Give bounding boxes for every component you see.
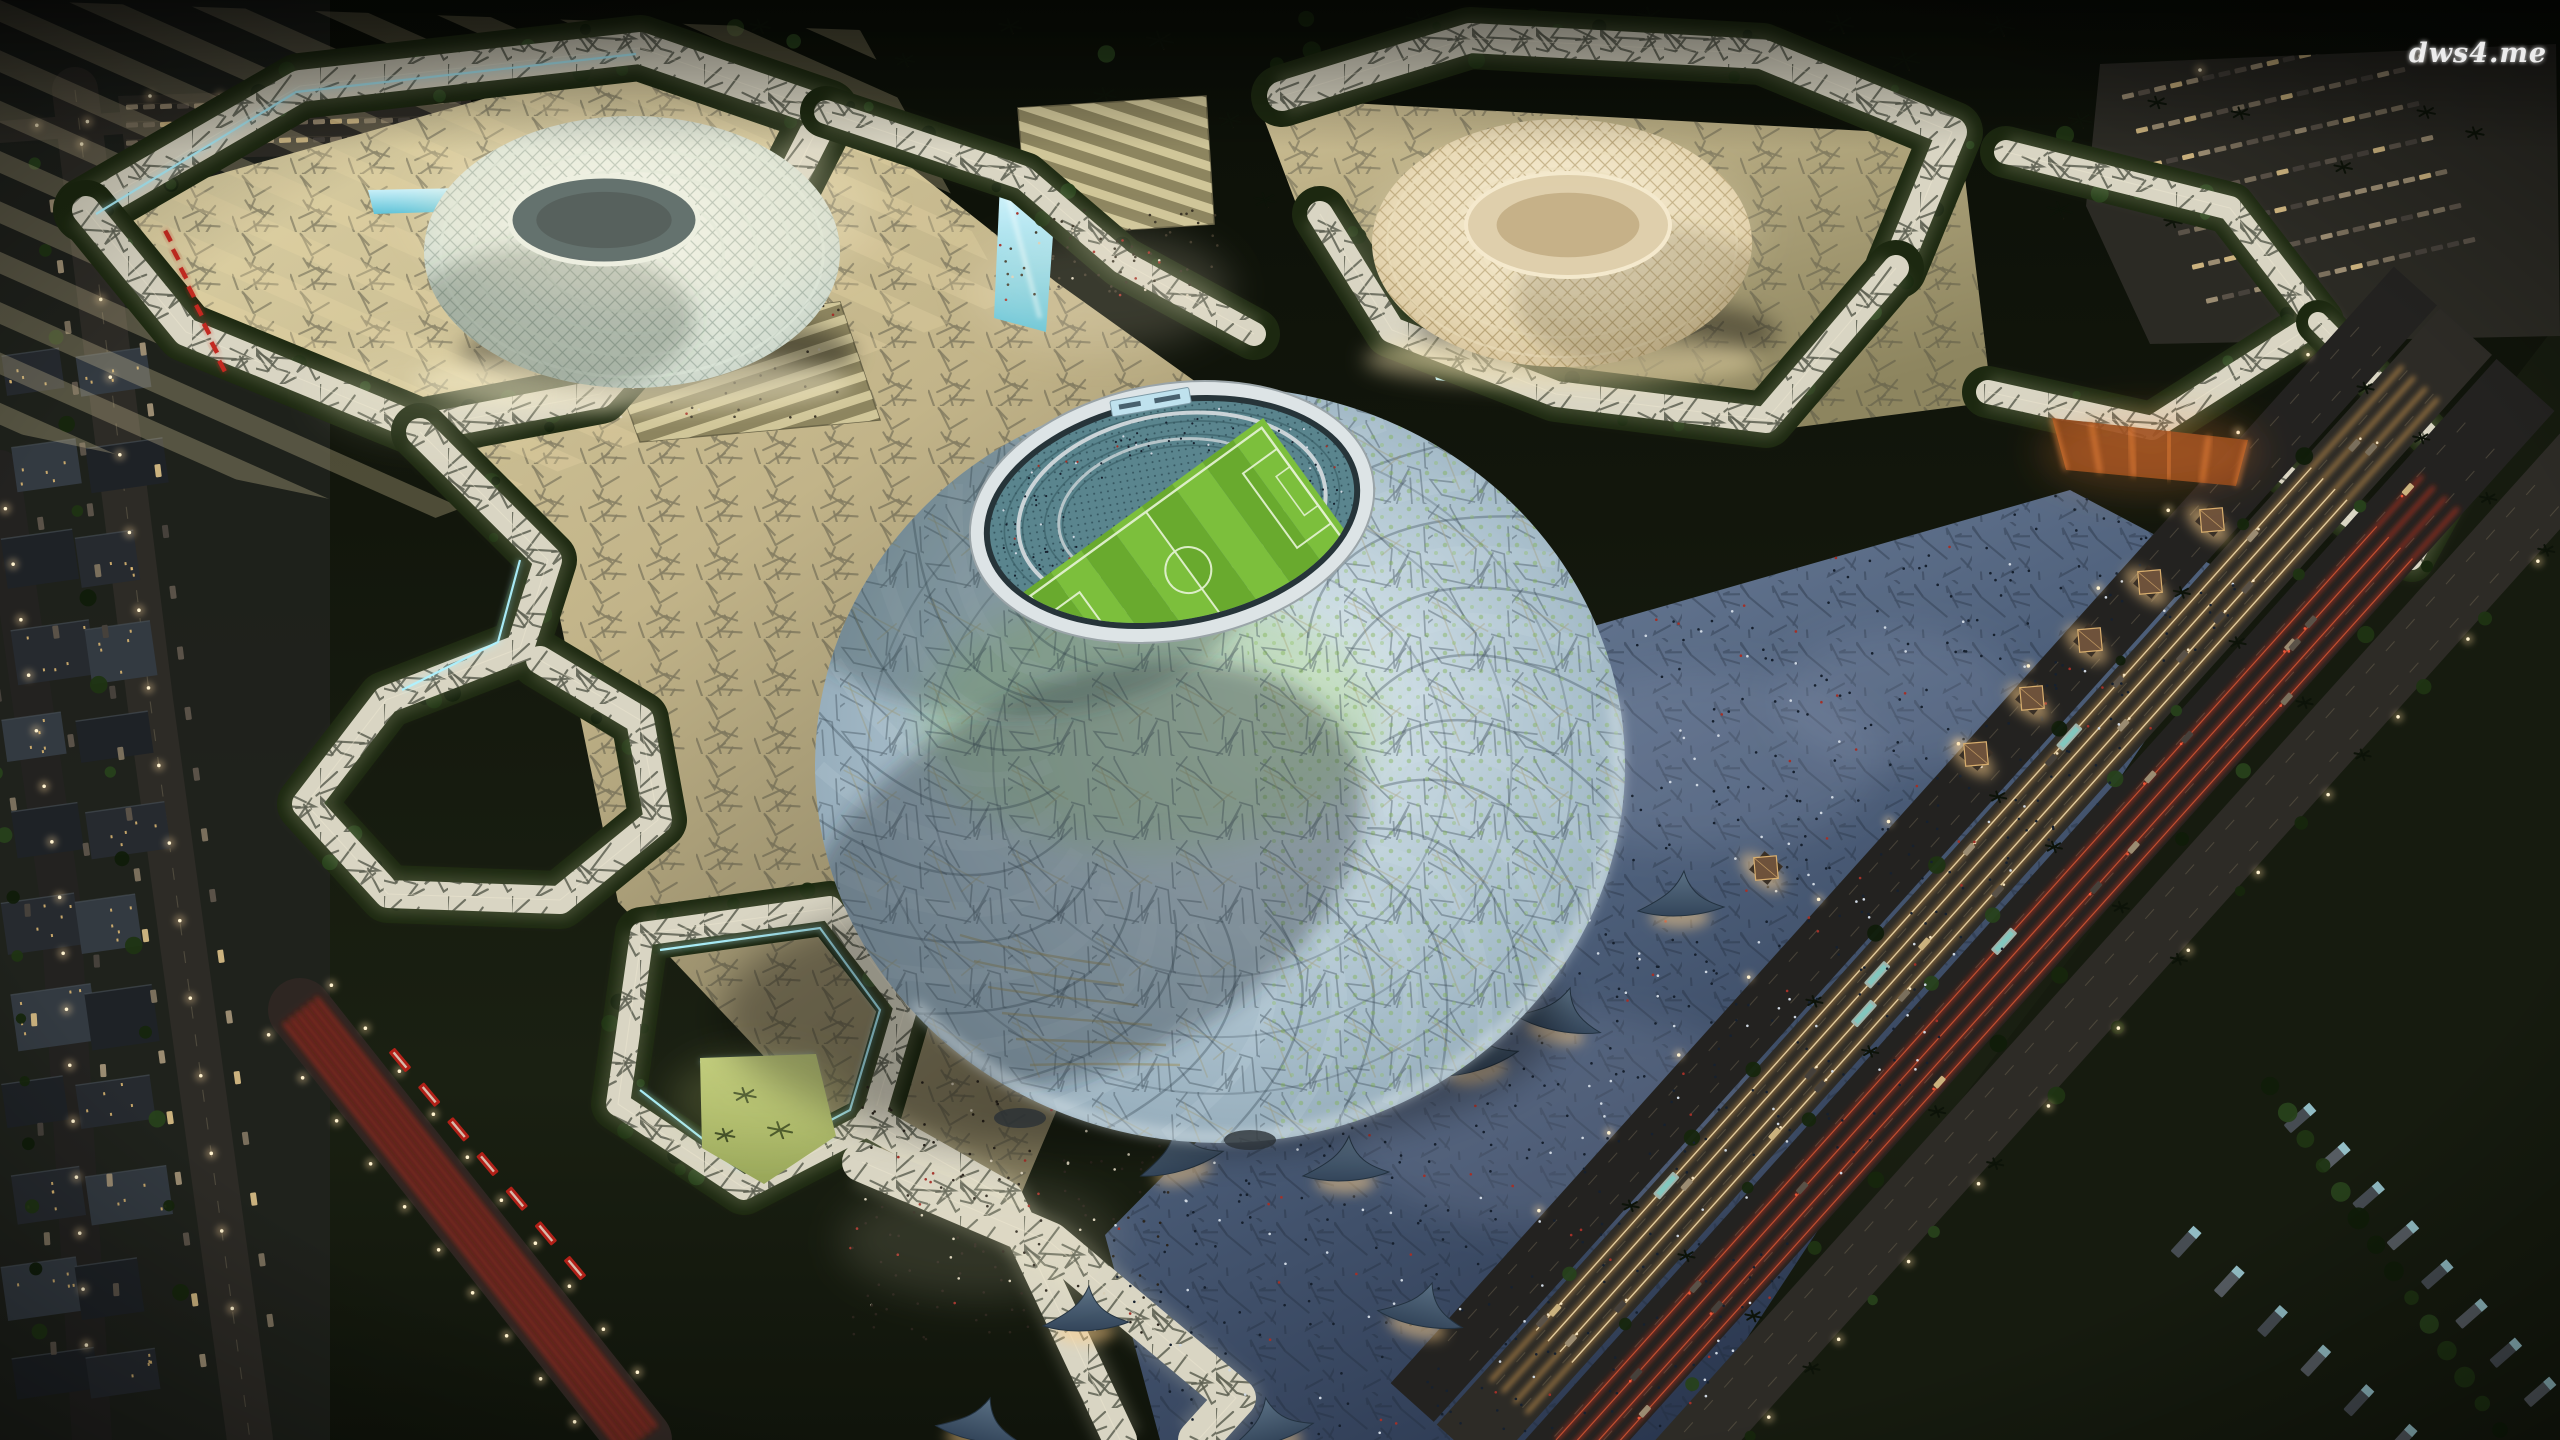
- aerial-stadium-render: dws4.me: [0, 0, 2560, 1440]
- layer-effects: [0, 0, 2560, 1440]
- watermark: dws4.me: [2409, 38, 2547, 69]
- render-stage: dws4.me: [0, 0, 2560, 1440]
